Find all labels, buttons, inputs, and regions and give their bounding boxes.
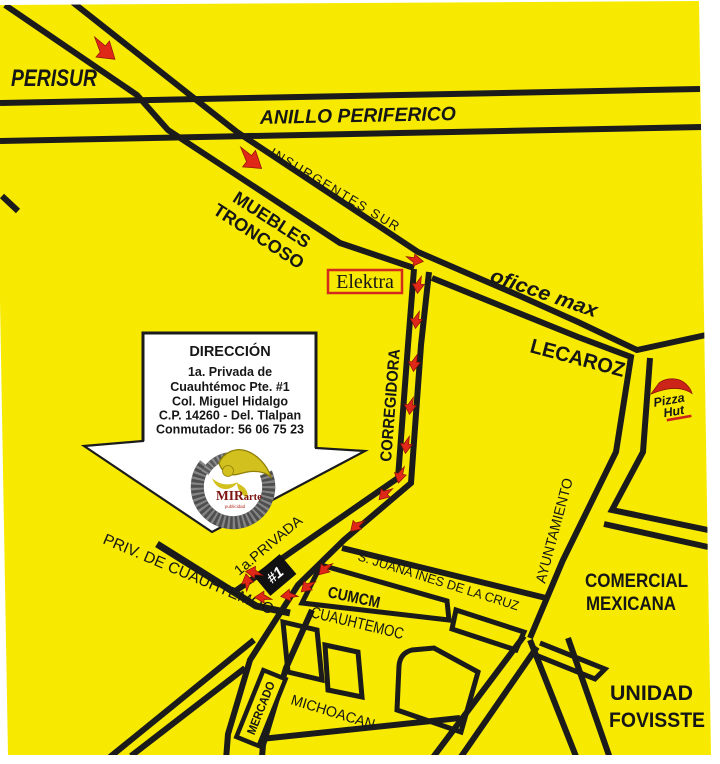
svg-text:PERISUR: PERISUR: [11, 65, 98, 92]
svg-text:publicidad: publicidad: [225, 504, 246, 509]
svg-text:FOVISSTE: FOVISSTE: [609, 709, 705, 732]
svg-text:COMERCIAL: COMERCIAL: [585, 571, 688, 592]
svg-text:Elektra: Elektra: [336, 271, 394, 293]
svg-text:MEXICANA: MEXICANA: [586, 594, 676, 615]
svg-text:Conmutador: 56 06 75 23: Conmutador: 56 06 75 23: [156, 423, 304, 437]
svg-text:Cuauhtémoc Pte. #1: Cuauhtémoc Pte. #1: [170, 380, 290, 394]
svg-text:C.P. 14260 - Del. Tlalpan: C.P. 14260 - Del. Tlalpan: [159, 409, 301, 423]
svg-text:Col. Miguel Hidalgo: Col. Miguel Hidalgo: [172, 395, 288, 409]
svg-text:UNIDAD: UNIDAD: [610, 682, 693, 705]
svg-text:ANILLO PERIFERICO: ANILLO PERIFERICO: [259, 103, 456, 129]
svg-text:DIRECCIÓN: DIRECCIÓN: [189, 342, 270, 360]
svg-text:1a. Privada de: 1a. Privada de: [188, 365, 272, 379]
